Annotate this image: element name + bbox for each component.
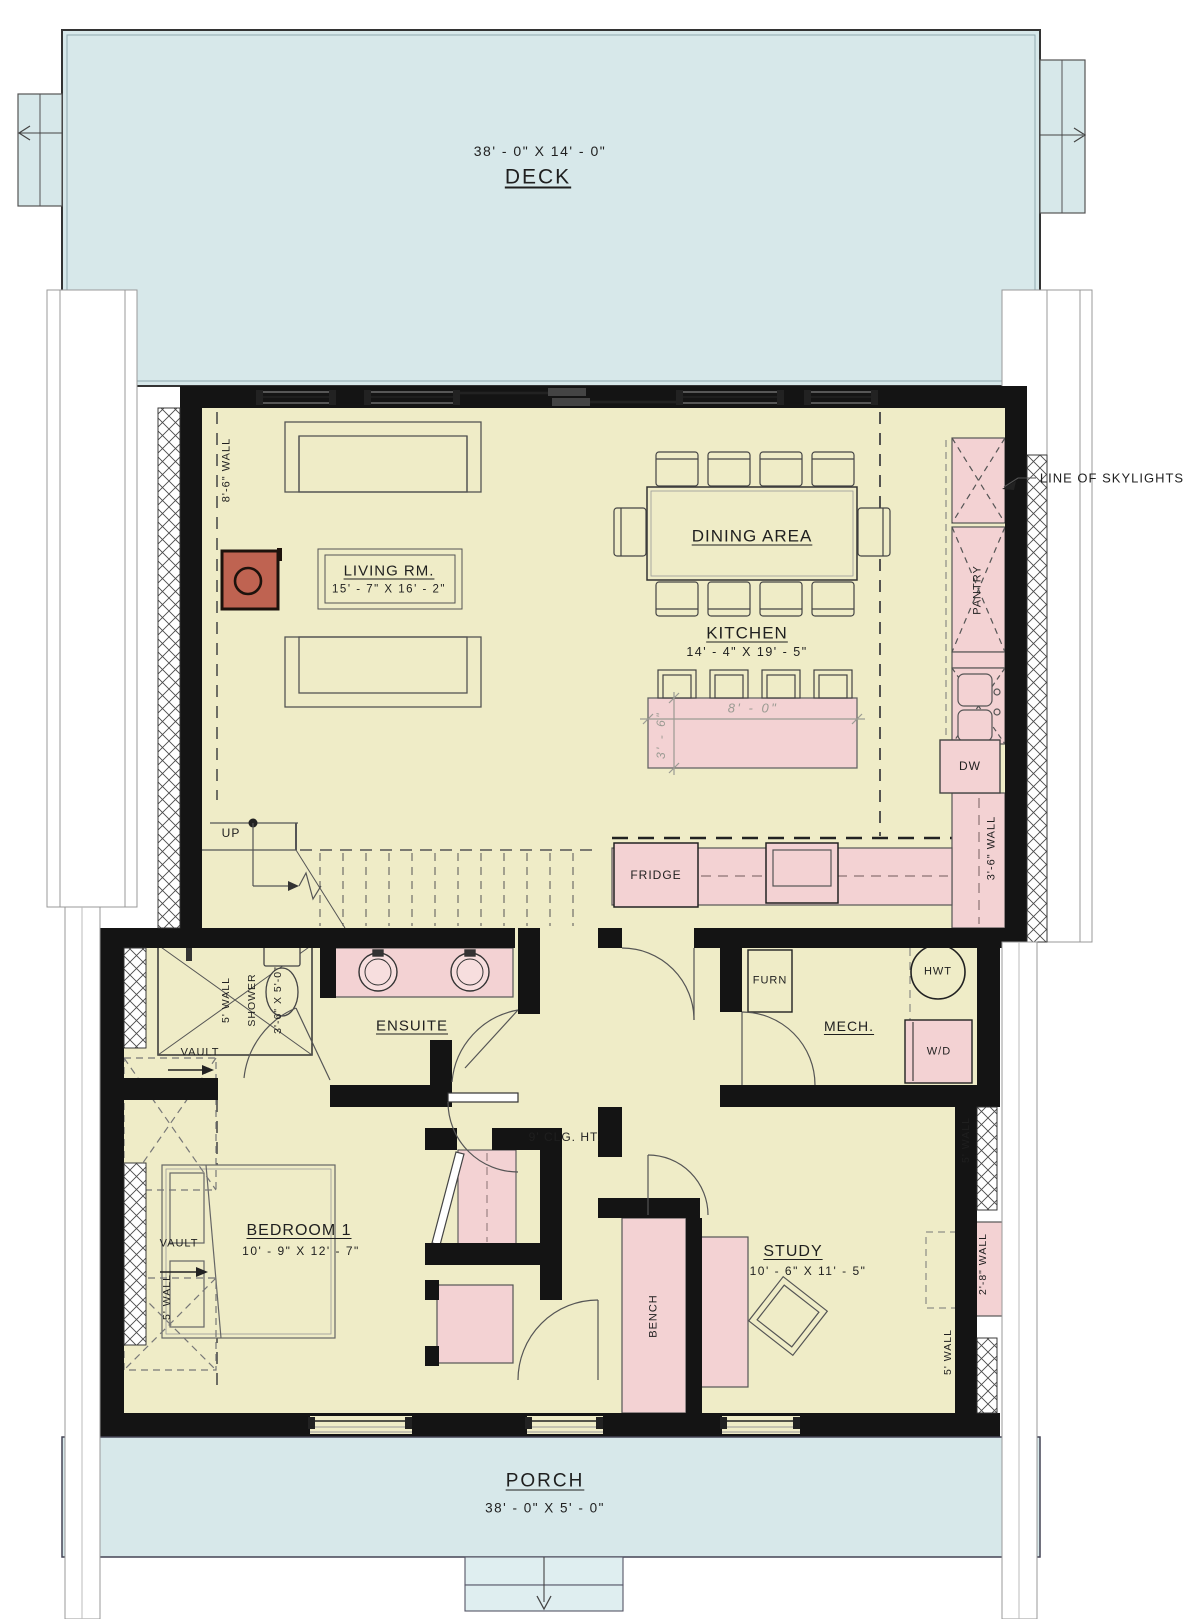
shower-head-icon bbox=[186, 947, 192, 961]
ceiling-height-label: 9' CLG. HT. bbox=[529, 1131, 602, 1143]
porch-title: PORCH bbox=[506, 1472, 585, 1491]
skylight-strip-left bbox=[47, 290, 137, 907]
bottom-windows bbox=[308, 1416, 800, 1434]
fridge-label: FRIDGE bbox=[630, 869, 681, 881]
hot-water-tank-label: HWT bbox=[924, 967, 952, 978]
deck-stair-left bbox=[18, 94, 62, 206]
deck-area bbox=[18, 30, 1085, 386]
study-title: STUDY bbox=[763, 1244, 822, 1260]
wall-8-6-label: 8'-6" WALL bbox=[222, 438, 233, 503]
sofa-top bbox=[285, 422, 481, 492]
washer-dryer-label: W/D bbox=[927, 1047, 951, 1058]
line-of-skylights-label: LINE OF SKYLIGHTS bbox=[1040, 472, 1184, 485]
porch-dims: 38' - 0" X 5' - 0" bbox=[485, 1501, 605, 1515]
dresser bbox=[437, 1285, 513, 1363]
mech-title: MECH. bbox=[824, 1019, 874, 1033]
deck-title: DECK bbox=[505, 167, 571, 188]
bench-label: BENCH bbox=[649, 1294, 660, 1338]
study-desk bbox=[700, 1237, 748, 1387]
living-room-dims: 15' - 7" X 16' - 2" bbox=[332, 584, 446, 596]
ensuite-title: ENSUITE bbox=[376, 1019, 448, 1034]
porch-strip-left bbox=[65, 907, 100, 1619]
wall-2-8-label: 2'-8" WALL bbox=[978, 1233, 989, 1295]
toilet-tank bbox=[264, 946, 300, 966]
vault-label-bedroom: VAULT bbox=[160, 1239, 199, 1250]
kitchen-dims: 14' - 4" X 19' - 5" bbox=[686, 646, 807, 659]
pillow bbox=[170, 1173, 204, 1243]
dining-area-title: DINING AREA bbox=[692, 528, 813, 545]
living-room-title: LIVING RM. bbox=[344, 564, 435, 579]
kitchen-sink-icon bbox=[958, 674, 992, 706]
floor-plan-drawing bbox=[0, 0, 1200, 1619]
sofa-bottom bbox=[285, 637, 481, 707]
island-width-dim: 8' - 0" bbox=[728, 702, 779, 715]
porch-steps bbox=[465, 1557, 623, 1611]
porch-area bbox=[62, 1437, 1040, 1611]
up-label: UP bbox=[222, 827, 241, 839]
bedroom-title: BEDROOM 1 bbox=[246, 1223, 351, 1239]
wall-5-mech-label: 5' WALL bbox=[961, 1117, 972, 1163]
deck-stair-right bbox=[1040, 60, 1085, 213]
wall-5-bedroom-label: 5' WALL bbox=[162, 1274, 173, 1320]
dishwasher-label: DW bbox=[959, 760, 981, 772]
kitchen-title: KITCHEN bbox=[706, 625, 788, 642]
pantry-label: PANTRY bbox=[973, 565, 984, 615]
range-icon bbox=[766, 843, 838, 903]
wall-3-6-label: 3'-6" WALL bbox=[987, 816, 998, 881]
shower-dims-label: 3'-6" X 5'-0" bbox=[273, 966, 284, 1034]
vault-label-ensuite: VAULT bbox=[181, 1048, 220, 1059]
bedroom-dims: 10' - 9" X 12' - 7" bbox=[242, 1245, 360, 1257]
island-depth-dim: 3' - 6" bbox=[655, 711, 667, 759]
furnace-label: FURN bbox=[753, 976, 788, 987]
shower-wall-label: 5' WALL bbox=[221, 977, 232, 1023]
porch-strip-right bbox=[1002, 942, 1037, 1619]
shower-label: SHOWER bbox=[247, 973, 258, 1026]
deck-dims: 38' - 0" X 14' - 0" bbox=[474, 144, 607, 158]
wood-stove-icon bbox=[222, 548, 282, 609]
study-dims: 10' - 6" X 11' - 5" bbox=[750, 1265, 867, 1277]
wall-5-study-label: 5' WALL bbox=[943, 1329, 954, 1375]
floor-plan: 38' - 0" X 14' - 0" DECK LINE OF SKYLIGH… bbox=[0, 0, 1200, 1619]
